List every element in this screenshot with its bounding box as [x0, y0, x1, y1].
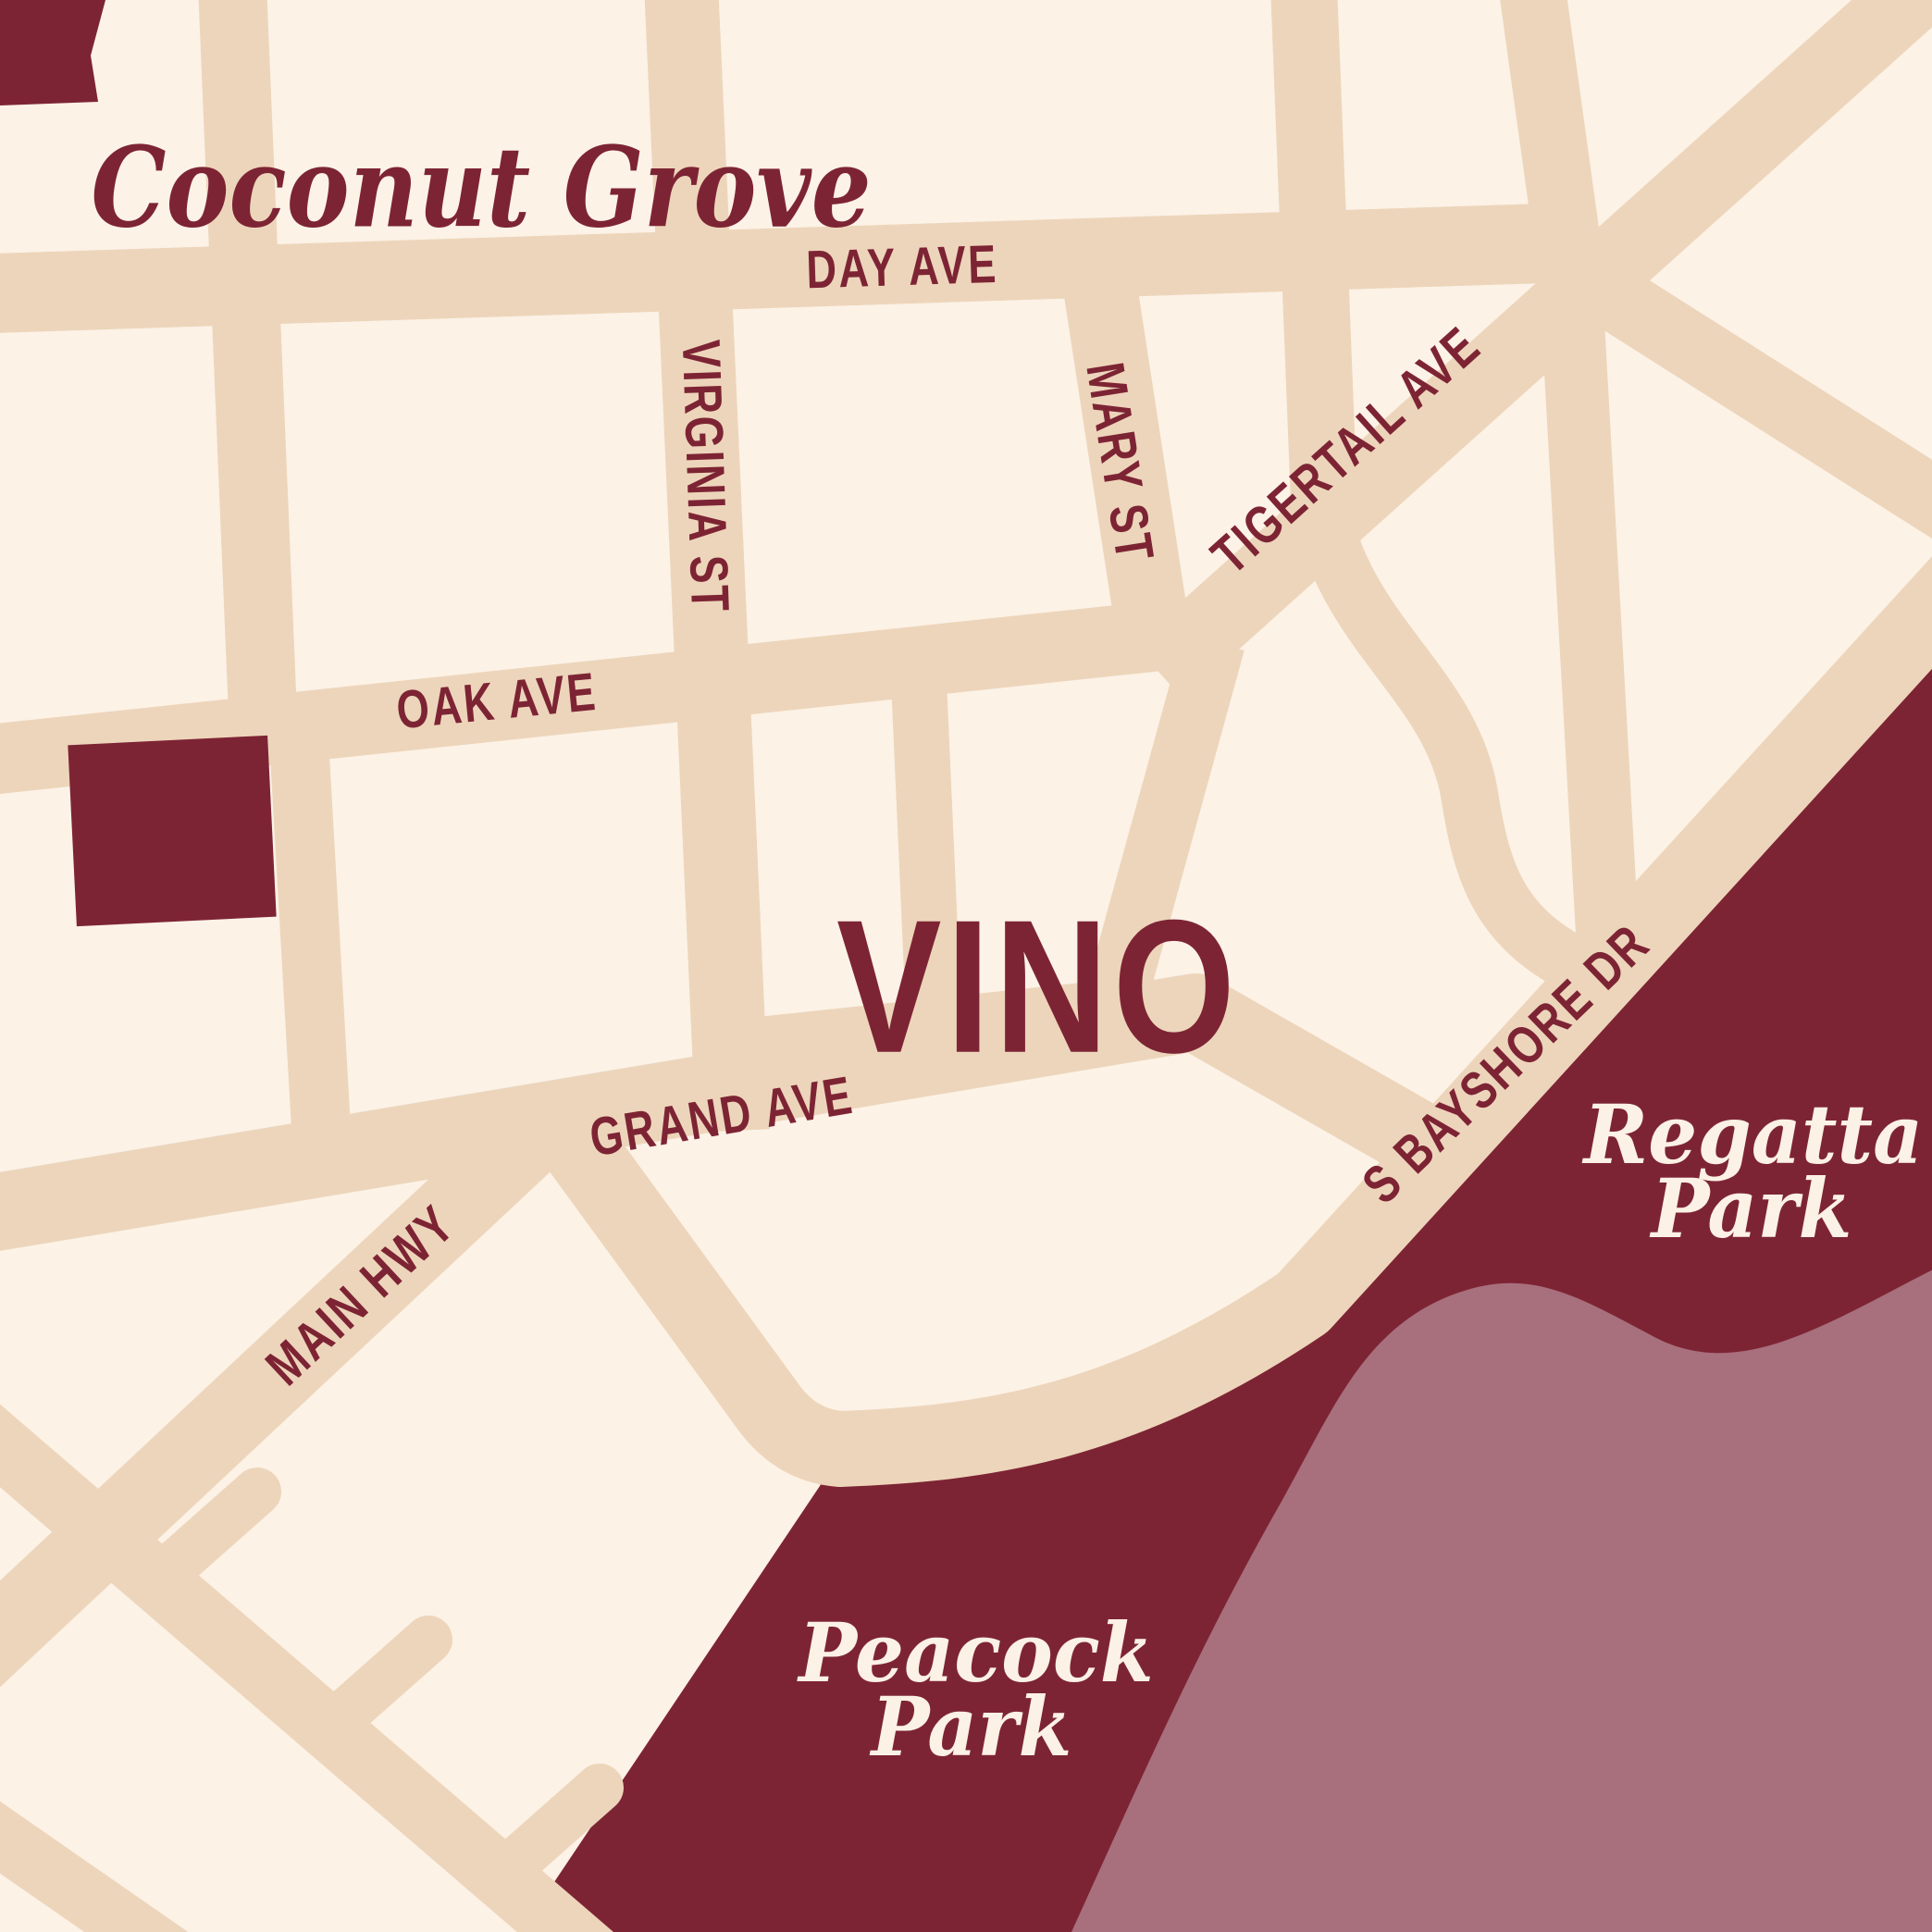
road-left-vertical [231, 0, 265, 759]
building-block-marker [68, 736, 276, 926]
street-label-virginia-st: VIRGINIA ST [670, 339, 739, 614]
road-top-vertical [1529, 0, 1571, 270]
regatta-park-label-line2: Park [1649, 1161, 1852, 1257]
brand-label-vino: VINO [836, 880, 1240, 1093]
coconut-grove-map: Coconut Grove DAY AVE VIRGINIA ST MARY S… [0, 0, 1932, 1932]
corner-block [0, 0, 105, 105]
road-connector-oak-grand [298, 724, 324, 1177]
neighborhood-label: Coconut Grove [91, 123, 871, 254]
road-east-vertical [1570, 273, 1610, 983]
street-label-day-ave: DAY AVE [805, 235, 998, 301]
map-canvas: Coconut Grove DAY AVE VIRGINIA ST MARY S… [0, 0, 1932, 1932]
peacock-park-label-line2: Park [869, 1679, 1072, 1776]
